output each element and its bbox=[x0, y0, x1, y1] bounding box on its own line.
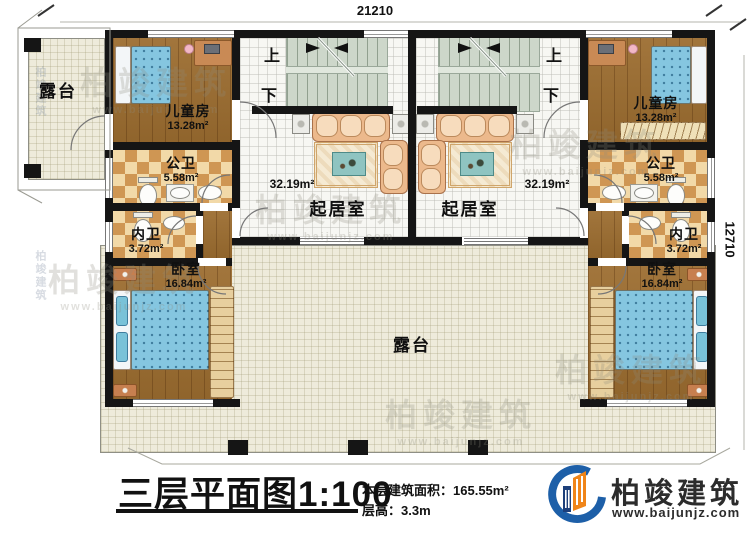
sink bbox=[602, 185, 626, 200]
corner-tick-icon bbox=[706, 5, 722, 16]
corner-tick-icon bbox=[730, 19, 746, 30]
floor-height-value: 3.3m bbox=[401, 503, 431, 518]
corner-tick-icon bbox=[38, 5, 54, 16]
title-underline bbox=[116, 509, 358, 513]
wall bbox=[240, 237, 300, 245]
sink bbox=[634, 187, 654, 199]
floor-height-line: 层高：3.3m bbox=[362, 501, 509, 521]
sofa-cushion bbox=[316, 115, 338, 137]
watermark-vertical: 柏竣建筑 bbox=[32, 250, 48, 302]
room-name: 起居室 bbox=[300, 200, 376, 219]
brand-logo: 柏竣建筑 www.baijunjz.com bbox=[543, 464, 748, 534]
bed bbox=[615, 290, 693, 370]
staircase-left bbox=[286, 36, 388, 112]
closet-hangers bbox=[620, 122, 706, 140]
room-label-children-right: 儿童房 13.28m² bbox=[606, 96, 706, 124]
side-table bbox=[516, 114, 534, 134]
door-opening bbox=[200, 203, 228, 211]
room-label-inner-bath-right: 内卫 3.72m² bbox=[650, 227, 718, 255]
room-name: 内卫 bbox=[650, 227, 718, 243]
floor-plan: 柏竣建筑 www.baijunjz.com 柏竣建筑 www.baijunjz.… bbox=[0, 0, 750, 540]
dimension-top: 21210 bbox=[330, 3, 420, 18]
computer-monitor bbox=[598, 44, 614, 54]
window bbox=[105, 158, 113, 198]
room-label-bedroom-left: 卧室 16.84m² bbox=[148, 262, 224, 290]
column bbox=[348, 440, 368, 455]
sofa-cushion bbox=[440, 115, 462, 137]
room-label-terrace-small: 露台 bbox=[20, 82, 96, 101]
room-label-public-bath-right: 公卫 5.58m² bbox=[628, 156, 694, 184]
sofa-cushion bbox=[383, 144, 403, 166]
room-label-children-left: 儿童房 13.28m² bbox=[138, 104, 238, 132]
door-opening bbox=[196, 216, 203, 244]
room-area-living-right: 32.19m² bbox=[512, 178, 582, 191]
room-name: 起居室 bbox=[432, 200, 508, 219]
sliding-door bbox=[464, 238, 528, 245]
column bbox=[228, 440, 248, 455]
wardrobe bbox=[210, 286, 234, 398]
lamp bbox=[184, 44, 194, 54]
stair-up-label-left: 上 bbox=[264, 42, 280, 66]
door-opening bbox=[598, 258, 626, 266]
room-area: 32.19m² bbox=[512, 178, 582, 191]
column bbox=[468, 440, 488, 455]
room-name: 露台 bbox=[20, 82, 96, 101]
door-opening bbox=[580, 208, 588, 238]
wall bbox=[417, 106, 517, 114]
room-area: 5.58m² bbox=[148, 172, 214, 184]
stair-landing-left bbox=[286, 66, 388, 74]
building-area-value: 165.55m² bbox=[453, 483, 509, 498]
door-opening bbox=[105, 114, 113, 150]
door-opening bbox=[596, 203, 624, 211]
room-name: 儿童房 bbox=[606, 96, 706, 112]
stair-up-label-right: 上 bbox=[546, 42, 562, 66]
wall bbox=[252, 106, 393, 114]
room-name: 卧室 bbox=[148, 262, 224, 278]
door-opening bbox=[580, 100, 588, 140]
floor-corridor-right bbox=[588, 211, 622, 258]
sofa-cushion bbox=[364, 115, 386, 137]
bed bbox=[131, 290, 209, 370]
floor-height-label: 层高： bbox=[362, 503, 401, 518]
side-table bbox=[292, 114, 310, 134]
room-area: 32.19m² bbox=[257, 178, 327, 191]
nightstand bbox=[113, 384, 137, 397]
column bbox=[24, 38, 41, 52]
coffee-table bbox=[332, 152, 366, 176]
wall bbox=[588, 142, 707, 150]
bed-pillow bbox=[115, 46, 131, 104]
room-area: 13.28m² bbox=[138, 120, 238, 132]
floor-terrace-small bbox=[28, 38, 105, 180]
wall bbox=[580, 30, 588, 102]
wall bbox=[364, 237, 462, 245]
room-name: 公卫 bbox=[148, 156, 214, 172]
stair-landing-right bbox=[438, 66, 540, 74]
wall bbox=[707, 30, 715, 407]
stair-down-label-left: 下 bbox=[261, 82, 277, 106]
room-label-public-bath-left: 公卫 5.58m² bbox=[148, 156, 214, 184]
wall bbox=[232, 238, 240, 245]
wall-party bbox=[408, 30, 416, 245]
room-area: 3.72m² bbox=[112, 243, 180, 255]
floor-corridor-left bbox=[203, 211, 232, 258]
sink bbox=[170, 187, 190, 199]
pillow bbox=[116, 296, 128, 326]
room-label-bedroom-right: 卧室 16.84m² bbox=[624, 262, 700, 290]
room-label-living-right: 起居室 bbox=[432, 200, 508, 219]
room-label-terrace-main: 露台 bbox=[384, 336, 440, 355]
room-name: 公卫 bbox=[628, 156, 694, 172]
wardrobe bbox=[590, 286, 614, 398]
sofa-cushion bbox=[488, 115, 510, 137]
room-area: 5.58m² bbox=[628, 172, 694, 184]
window bbox=[133, 399, 213, 407]
room-area-living-left: 32.19m² bbox=[257, 178, 327, 191]
sliding-door bbox=[300, 238, 364, 245]
toilet-tank bbox=[671, 212, 691, 218]
coffee-table bbox=[460, 152, 494, 176]
wall bbox=[580, 238, 588, 245]
room-label-living-left: 起居室 bbox=[300, 200, 376, 219]
wall bbox=[528, 237, 580, 245]
room-area: 16.84m² bbox=[624, 278, 700, 290]
area-info: 本层建筑面积：165.55m² 层高：3.3m bbox=[362, 481, 509, 521]
wall bbox=[113, 142, 232, 150]
wall bbox=[580, 140, 588, 210]
room-area: 3.72m² bbox=[650, 243, 718, 255]
room-label-inner-bath-left: 内卫 3.72m² bbox=[112, 227, 180, 255]
side-table bbox=[416, 114, 434, 134]
building-area-label: 本层建筑面积： bbox=[362, 483, 453, 498]
sofa-cushion bbox=[421, 168, 441, 190]
window bbox=[707, 158, 715, 198]
brand-logo-icon bbox=[543, 464, 607, 528]
room-name: 卧室 bbox=[624, 262, 700, 278]
sofa-cushion bbox=[383, 168, 403, 190]
window bbox=[148, 30, 234, 38]
brand-website: www.baijunjz.com bbox=[612, 505, 740, 520]
wall bbox=[232, 30, 240, 102]
lamp bbox=[628, 44, 638, 54]
window bbox=[586, 30, 672, 38]
stair-down-label-right: 下 bbox=[543, 82, 559, 106]
sink bbox=[198, 185, 222, 200]
toilet-tank bbox=[133, 212, 153, 218]
room-name: 露台 bbox=[384, 336, 440, 355]
bed bbox=[131, 46, 171, 104]
staircase-right bbox=[438, 36, 540, 112]
computer-monitor bbox=[204, 44, 220, 54]
wall bbox=[105, 30, 113, 407]
building-area-line: 本层建筑面积：165.55m² bbox=[362, 481, 509, 501]
sofa-cushion bbox=[340, 115, 362, 137]
dimension-right: 12710 bbox=[723, 210, 738, 270]
wall bbox=[232, 140, 240, 210]
room-name: 儿童房 bbox=[138, 104, 238, 120]
window bbox=[607, 399, 687, 407]
sofa-cushion bbox=[464, 115, 486, 137]
door-opening bbox=[232, 208, 240, 238]
window bbox=[364, 30, 408, 38]
room-name: 内卫 bbox=[112, 227, 180, 243]
column bbox=[24, 164, 41, 178]
room-area: 13.28m² bbox=[606, 112, 706, 124]
room-area: 16.84m² bbox=[148, 278, 224, 290]
sofa-cushion bbox=[421, 144, 441, 166]
door-opening bbox=[622, 216, 629, 244]
nightstand bbox=[113, 268, 137, 281]
pillow bbox=[116, 332, 128, 362]
